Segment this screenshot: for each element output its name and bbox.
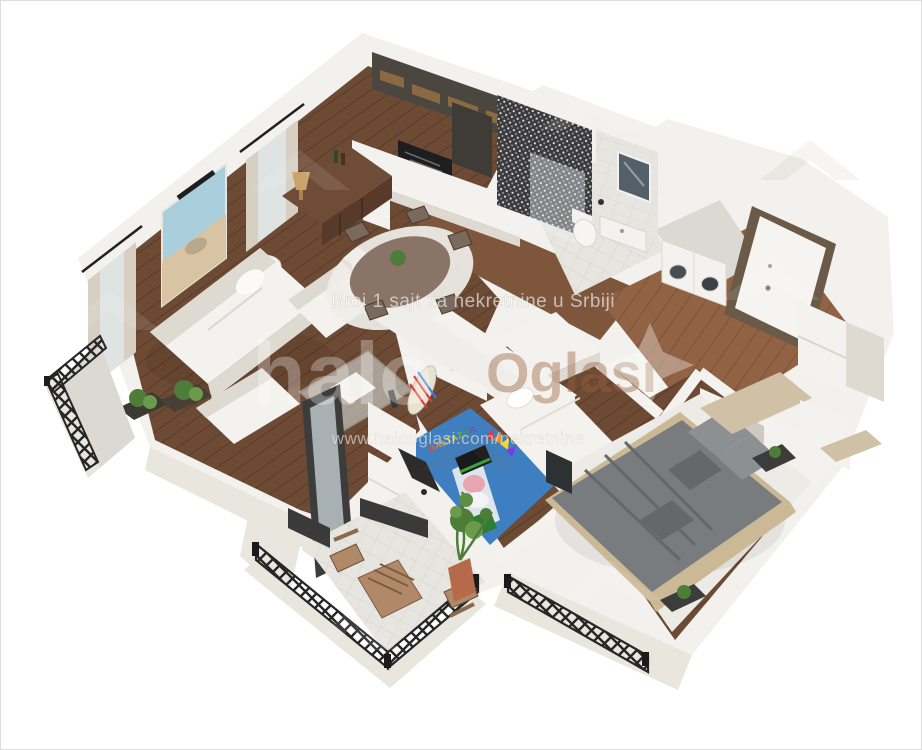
watermark-url: www.halooglasi.com/nekretnine <box>331 429 585 448</box>
railing-post <box>384 654 391 668</box>
table-plant <box>390 250 406 266</box>
railing-post <box>44 376 50 386</box>
watermark-tagline: Broj 1 sajt za nekretnine u Srbiji <box>331 291 615 312</box>
nightstand-plant <box>769 446 781 458</box>
chair-wheel-icon <box>421 489 427 495</box>
nightstand-plant <box>677 585 691 599</box>
table-lamp-base <box>299 190 303 200</box>
logo-halo-text: halo <box>252 324 433 423</box>
door-handle-icon <box>765 285 770 290</box>
floor-plan-render: BALTAZAR <box>0 0 922 750</box>
faucet <box>620 229 624 233</box>
towel-ring <box>598 199 604 205</box>
wine-bottle-icon <box>334 150 338 163</box>
wine-bottle-icon <box>341 153 345 165</box>
dryer-door <box>702 277 719 291</box>
cartoon-face <box>463 475 485 493</box>
railing-post <box>504 574 511 588</box>
washer-door <box>670 265 687 279</box>
railing-post <box>642 652 649 666</box>
railing-post <box>252 542 259 556</box>
